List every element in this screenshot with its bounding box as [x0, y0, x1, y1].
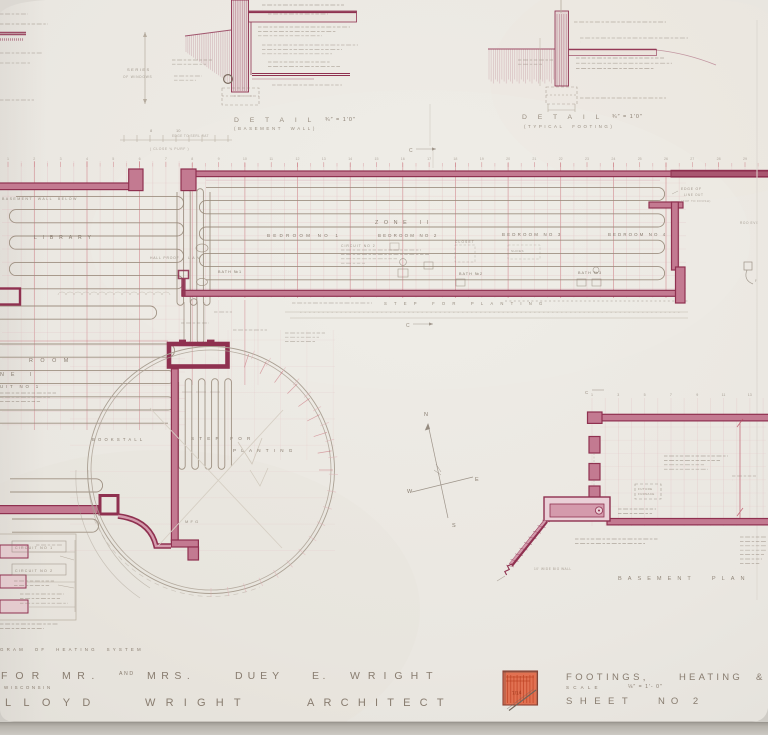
svg-text:3: 3 — [617, 393, 619, 397]
svg-text:BOOKSTALL: BOOKSTALL — [92, 437, 145, 442]
svg-text:3: 3 — [60, 157, 62, 161]
svg-text:PLANTING: PLANTING — [233, 448, 298, 453]
svg-text:4: 4 — [86, 157, 88, 161]
svg-text:11: 11 — [722, 393, 726, 397]
svg-text:FOR: FOR — [1, 670, 47, 682]
svg-text:BASEMENT WALL BELOW: BASEMENT WALL BELOW — [2, 197, 78, 201]
svg-text:E.: E. — [312, 670, 329, 682]
svg-text:10′ WIDE BIG WALL: 10′ WIDE BIG WALL — [534, 567, 572, 571]
svg-text:MRS.: MRS. — [147, 670, 195, 682]
svg-text:SHOES: SHOES — [511, 249, 524, 253]
svg-text:10: 10 — [176, 128, 181, 133]
svg-text:10: 10 — [243, 157, 247, 161]
svg-text:13: 13 — [748, 393, 752, 397]
svg-text:25: 25 — [638, 157, 642, 161]
svg-text:BEDROOM NO 1: BEDROOM NO 1 — [267, 233, 341, 238]
svg-text:7: 7 — [165, 157, 167, 161]
svg-text:8: 8 — [191, 157, 193, 161]
svg-text:BASEMENT PLAN: BASEMENT PLAN — [618, 576, 751, 582]
svg-text:DUEY: DUEY — [235, 670, 284, 682]
svg-text:C: C — [406, 323, 410, 329]
svg-text:OF WINDOWS: OF WINDOWS — [123, 75, 152, 79]
svg-text:LLOYD: LLOYD — [5, 697, 103, 709]
svg-text:CIRCUIT NO 2: CIRCUIT NO 2 — [341, 244, 376, 248]
svg-text:C: C — [409, 148, 413, 154]
svg-text:5: 5 — [644, 393, 646, 397]
svg-text:SHEET: SHEET — [566, 696, 635, 707]
svg-text:CIRCUIT NO 2: CIRCUIT NO 2 — [15, 569, 53, 573]
svg-text:BEDROOM NO 3: BEDROOM NO 3 — [502, 232, 563, 237]
svg-text:LINE OUT: LINE OUT — [684, 193, 704, 197]
svg-text:HALL PROOF: HALL PROOF — [150, 256, 179, 260]
svg-text:BATH №2: BATH №2 — [459, 272, 483, 276]
svg-text:⅛″ = 1′- 0″: ⅛″ = 1′- 0″ — [628, 684, 663, 690]
svg-text:ROOM: ROOM — [29, 358, 76, 364]
svg-text:MR.: MR. — [62, 670, 101, 682]
svg-text:ARCHITECT: ARCHITECT — [307, 697, 453, 709]
svg-text:12: 12 — [296, 157, 300, 161]
svg-text:SCALE: SCALE — [566, 685, 602, 690]
svg-text:14: 14 — [348, 157, 352, 161]
svg-text:13: 13 — [322, 157, 326, 161]
svg-text:BEDROOM NO 4: BEDROOM NO 4 — [608, 232, 667, 237]
svg-text:FUTURE: FUTURE — [638, 487, 653, 491]
svg-text:STEP FOR PLANTING: STEP FOR PLANTING — [384, 301, 549, 306]
svg-text:HEATING: HEATING — [679, 672, 743, 683]
svg-text:FURNACE: FURNACE — [638, 492, 655, 496]
svg-text:27: 27 — [690, 157, 694, 161]
svg-text:DETAIL: DETAIL — [234, 117, 322, 124]
svg-text:24: 24 — [611, 157, 615, 161]
svg-text:23: 23 — [585, 157, 589, 161]
svg-text:S: S — [452, 523, 456, 529]
svg-text:17: 17 — [427, 157, 431, 161]
svg-text:FOOTINGS,: FOOTINGS, — [566, 672, 649, 683]
svg-text:SERIES: SERIES — [127, 67, 151, 72]
svg-text:ZONE II: ZONE II — [375, 220, 434, 226]
svg-text:STEP FOR: STEP FOR — [191, 436, 256, 441]
svg-text:UIT NO 1: UIT NO 1 — [0, 384, 41, 389]
svg-text:22: 22 — [559, 157, 563, 161]
svg-text:28: 28 — [717, 157, 721, 161]
svg-text:L A V: L A V — [188, 256, 200, 260]
svg-text:16: 16 — [401, 157, 405, 161]
svg-text:CLOSET: CLOSET — [455, 240, 475, 244]
svg-text:WRIGHT: WRIGHT — [145, 697, 251, 709]
svg-text:20: 20 — [506, 157, 510, 161]
svg-text:AND: AND — [119, 671, 135, 677]
svg-text:1: 1 — [591, 393, 593, 397]
svg-text:5: 5 — [112, 157, 114, 161]
svg-text:(BASEMENT WALL): (BASEMENT WALL) — [234, 126, 317, 131]
svg-text:&: & — [756, 672, 763, 683]
svg-text:N: N — [424, 412, 428, 418]
svg-text:6: 6 — [139, 157, 141, 161]
svg-text:WRIGHT: WRIGHT — [350, 670, 441, 682]
svg-text:(TOP TO FINISH): (TOP TO FINISH) — [681, 199, 711, 203]
svg-text:11: 11 — [269, 157, 273, 161]
svg-text:GRAM OF HEATING SYSTEM: GRAM OF HEATING SYSTEM — [0, 647, 144, 652]
svg-text:19: 19 — [480, 157, 484, 161]
svg-text:7/14: 7/14 — [512, 690, 523, 697]
svg-text:21: 21 — [532, 157, 536, 161]
svg-text:¾″ = 1′0″: ¾″ = 1′0″ — [612, 114, 643, 120]
svg-text:EDGE OF: EDGE OF — [681, 187, 702, 191]
svg-text:NE I: NE I — [0, 372, 38, 378]
svg-text:18: 18 — [453, 157, 457, 161]
svg-text:W: W — [407, 489, 413, 495]
svg-text:BEDROOM NO 2: BEDROOM NO 2 — [378, 233, 439, 238]
svg-text:CIRCUIT NO 1: CIRCUIT NO 1 — [15, 546, 53, 550]
svg-text:2: 2 — [33, 157, 35, 161]
svg-text:1: 1 — [7, 157, 9, 161]
svg-text:(TYPICAL FOOTING): (TYPICAL FOOTING) — [524, 124, 614, 129]
svg-text:LIBRARY: LIBRARY — [34, 235, 97, 241]
svg-text:BATH №1: BATH №1 — [218, 270, 242, 274]
svg-text:NO 2: NO 2 — [658, 696, 704, 707]
svg-text:9: 9 — [218, 157, 220, 161]
svg-text:15: 15 — [375, 157, 379, 161]
svg-text:EDGE TO SERL RAT: EDGE TO SERL RAT — [172, 134, 209, 138]
svg-text:26: 26 — [664, 157, 668, 161]
svg-text:¾″ = 1′0″: ¾″ = 1′0″ — [325, 117, 356, 123]
svg-text:ROO EVE: ROO EVE — [740, 221, 759, 225]
svg-text:MFG: MFG — [185, 519, 201, 524]
svg-text:7: 7 — [670, 393, 672, 397]
svg-text:( CLOSE ¾ PURF ): ( CLOSE ¾ PURF ) — [150, 147, 189, 151]
svg-text:29: 29 — [743, 157, 747, 161]
svg-text:9: 9 — [696, 393, 698, 397]
svg-text:DETAIL: DETAIL — [522, 114, 610, 121]
svg-text:WISCONSIN: WISCONSIN — [4, 685, 53, 690]
svg-text:E: E — [475, 477, 479, 483]
